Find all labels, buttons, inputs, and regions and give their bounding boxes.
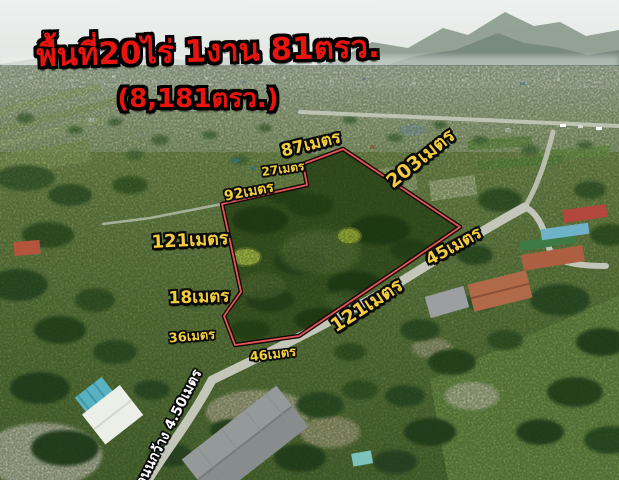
land-listing-aerial-image: พื้นที่20ไร่ 1งาน 81ตรว. (8,181ตรว.) 87เ…	[0, 0, 619, 480]
measurement-18m-label: 18เมตร	[168, 288, 229, 307]
area-subtitle-label: (8,181ตรว.)	[117, 86, 278, 112]
area-title-label: พื้นที่20ไร่ 1งาน 81ตรว.	[36, 32, 380, 72]
measurement-36m-label: 36เมตร	[168, 328, 215, 345]
red-shack	[13, 240, 40, 256]
measurement-121m-west-label: 121เมตร	[151, 230, 229, 252]
